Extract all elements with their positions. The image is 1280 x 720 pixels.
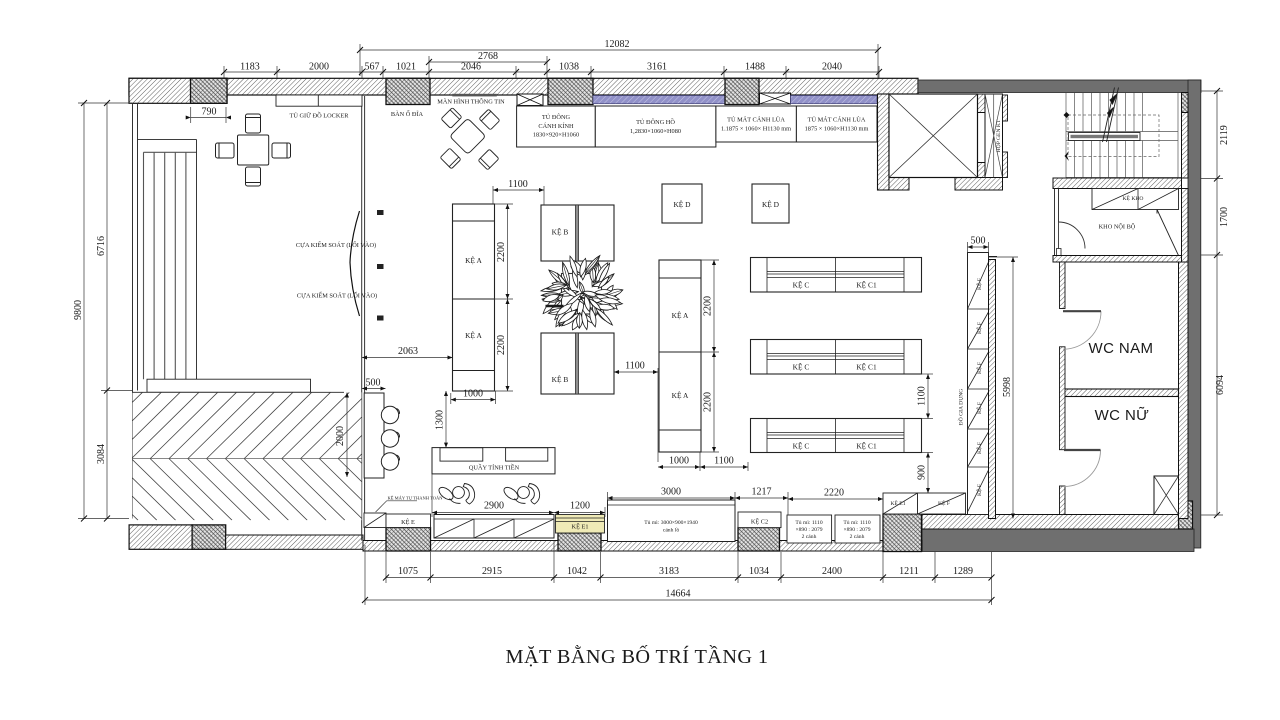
svg-text:QUẦY TÍNH TIỀN: QUẦY TÍNH TIỀN [469, 464, 520, 472]
svg-text:KỆ A: KỆ A [465, 255, 482, 265]
svg-text:2900: 2900 [484, 501, 504, 512]
svg-text:3000: 3000 [661, 487, 681, 498]
svg-text:KỆ F: KỆ F [975, 402, 983, 414]
svg-text:KỆ D: KỆ D [762, 199, 780, 209]
svg-text:TỦ GIỮ ĐỒ LOCKER: TỦ GIỮ ĐỒ LOCKER [290, 112, 350, 120]
svg-text:1100: 1100 [714, 456, 734, 467]
svg-text:1830×920×H1060: 1830×920×H1060 [533, 132, 579, 139]
svg-text:KỆ D: KỆ D [673, 199, 691, 209]
svg-text:KỆ A: KỆ A [465, 330, 482, 340]
svg-text:14664: 14664 [666, 589, 691, 600]
svg-text:3183: 3183 [659, 566, 679, 577]
svg-text:1,2830×1060×H080: 1,2830×1060×H080 [630, 128, 681, 135]
svg-text:1021: 1021 [396, 62, 416, 73]
svg-text:2400: 2400 [822, 566, 842, 577]
svg-text:1100: 1100 [508, 179, 528, 190]
svg-text:2200: 2200 [496, 242, 507, 262]
svg-text:12082: 12082 [605, 39, 630, 50]
svg-text:2000: 2000 [309, 62, 329, 73]
svg-text:KỆ F: KỆ F [938, 499, 950, 507]
svg-text:BÀN Ổ ĐĨA: BÀN Ổ ĐĨA [391, 110, 424, 118]
svg-text:1700: 1700 [1219, 207, 1230, 227]
svg-text:1042: 1042 [567, 566, 587, 577]
svg-text:Tủ mì: 1110: Tủ mì: 1110 [843, 520, 870, 526]
svg-text:WC NỮ: WC NỮ [1095, 407, 1150, 424]
svg-text:KỆ E: KỆ E [401, 518, 415, 526]
svg-text:CỰA KIỂM SOÁT (LỐI VÀO): CỰA KIỂM SOÁT (LỐI VÀO) [297, 292, 377, 300]
svg-text:1000: 1000 [463, 389, 483, 400]
svg-text:KỆ C1: KỆ C1 [856, 441, 877, 451]
svg-text:1200: 1200 [570, 501, 590, 512]
svg-text:KỆ F: KỆ F [975, 484, 983, 496]
svg-text:KỆ C1: KỆ C1 [856, 280, 877, 290]
svg-text:6094: 6094 [1215, 375, 1226, 395]
svg-text:1300: 1300 [435, 410, 446, 430]
svg-text:1183: 1183 [240, 62, 260, 73]
svg-text:1034: 1034 [749, 566, 769, 577]
svg-text:900: 900 [917, 465, 928, 480]
svg-text:TỦ ĐÔNG HỒ: TỦ ĐÔNG HỒ [636, 118, 675, 126]
svg-text:2220: 2220 [824, 488, 844, 499]
svg-text:CÁNH KÍNH: CÁNH KÍNH [538, 122, 574, 130]
svg-text:2040: 2040 [822, 62, 842, 73]
svg-text:2 cánh: 2 cánh [850, 534, 865, 540]
svg-text:cánh lồ: cánh lồ [663, 527, 680, 534]
svg-text:KỆ MÁY TỰ THANH TOÁN: KỆ MÁY TỰ THANH TOÁN [388, 496, 444, 501]
svg-text:KỆ F: KỆ F [975, 442, 983, 454]
svg-text:2768: 2768 [478, 51, 498, 62]
svg-text:MÀN HÌNH THÔNG TIN: MÀN HÌNH THÔNG TIN [437, 98, 505, 106]
svg-text:2000: 2000 [335, 426, 346, 446]
svg-text:1100: 1100 [625, 361, 645, 372]
svg-text:KỆ C: KỆ C [793, 362, 810, 372]
svg-text:KỆ F: KỆ F [975, 278, 983, 290]
svg-text:790: 790 [202, 107, 217, 118]
svg-text:Tủ mì: 1110: Tủ mì: 1110 [795, 520, 822, 526]
svg-text:KỆ C: KỆ C [793, 280, 810, 290]
svg-text:9800: 9800 [73, 300, 84, 320]
svg-text:6716: 6716 [96, 236, 107, 256]
svg-text:KỆ E1: KỆ E1 [572, 523, 589, 531]
svg-text:KỆ B: KỆ B [552, 374, 569, 384]
svg-text:KỆ A: KỆ A [672, 310, 689, 320]
svg-text:1875 × 1060×H1130 mm: 1875 × 1060×H1130 mm [805, 126, 869, 133]
svg-text:KHO NỘI BỘ: KHO NỘI BỘ [1099, 223, 1136, 231]
svg-text:1.1875 × 1060× H1130 mm: 1.1875 × 1060× H1130 mm [721, 126, 791, 133]
svg-text:3084: 3084 [96, 444, 107, 464]
svg-text:TỦ MÁT CÁNH LÙA: TỦ MÁT CÁNH LÙA [727, 116, 785, 124]
svg-text:KỆ C1: KỆ C1 [856, 362, 877, 372]
svg-text:500: 500 [366, 378, 381, 389]
svg-text:KỆ F: KỆ F [975, 322, 983, 334]
svg-text:KỆ F: KỆ F [975, 362, 983, 374]
svg-text:WC NAM: WC NAM [1089, 340, 1154, 357]
svg-text:2200: 2200 [496, 335, 507, 355]
svg-text:2200: 2200 [703, 392, 714, 412]
svg-text:TỦ MÁT CÁNH LÙA: TỦ MÁT CÁNH LÙA [808, 116, 866, 124]
svg-text:2 cánh: 2 cánh [802, 534, 817, 540]
svg-text:1488: 1488 [745, 62, 765, 73]
svg-text:KỆ KHO: KỆ KHO [1123, 194, 1144, 202]
svg-text:TỦ ĐÔNG: TỦ ĐÔNG [542, 113, 571, 121]
svg-text:×890 : 2079: ×890 : 2079 [795, 527, 822, 533]
svg-text:1038: 1038 [559, 62, 579, 73]
svg-text:5998: 5998 [1002, 377, 1013, 397]
svg-text:MẶT BẰNG BỐ TRÍ TẦNG 1: MẶT BẰNG BỐ TRÍ TẦNG 1 [506, 644, 769, 668]
svg-text:KỆ C2: KỆ C2 [751, 518, 768, 526]
svg-text:KỆ A: KỆ A [672, 390, 689, 400]
svg-text:1211: 1211 [899, 566, 919, 577]
svg-text:1217: 1217 [752, 487, 772, 498]
svg-text:1075: 1075 [398, 566, 418, 577]
svg-text:2915: 2915 [482, 566, 502, 577]
svg-text:2200: 2200 [703, 296, 714, 316]
svg-text:1000: 1000 [669, 456, 689, 467]
svg-text:KỆ C: KỆ C [793, 441, 810, 451]
svg-text:CỰA KIỂM SOÁT (LỐI VÀO): CỰA KIỂM SOÁT (LỐI VÀO) [296, 241, 376, 249]
svg-text:KỆ B: KỆ B [552, 227, 569, 237]
svg-text:500: 500 [971, 236, 986, 247]
svg-text:KỆ E1: KỆ E1 [890, 499, 905, 507]
svg-text:2063: 2063 [398, 346, 418, 357]
svg-text:HỘP GEN KT: HỘP GEN KT [994, 119, 1002, 152]
svg-text:×890 : 2079: ×890 : 2079 [843, 527, 870, 533]
svg-text:1289: 1289 [953, 566, 973, 577]
svg-text:3161: 3161 [647, 62, 667, 73]
svg-text:2119: 2119 [1219, 125, 1230, 145]
svg-text:1100: 1100 [917, 386, 928, 406]
svg-text:ĐỒ GIA DỤNG: ĐỒ GIA DỤNG [957, 389, 965, 426]
svg-text:Tủ mì: 3000×900×1940: Tủ mì: 3000×900×1940 [644, 520, 698, 526]
svg-text:2046: 2046 [461, 62, 481, 73]
svg-text:567: 567 [365, 62, 380, 73]
